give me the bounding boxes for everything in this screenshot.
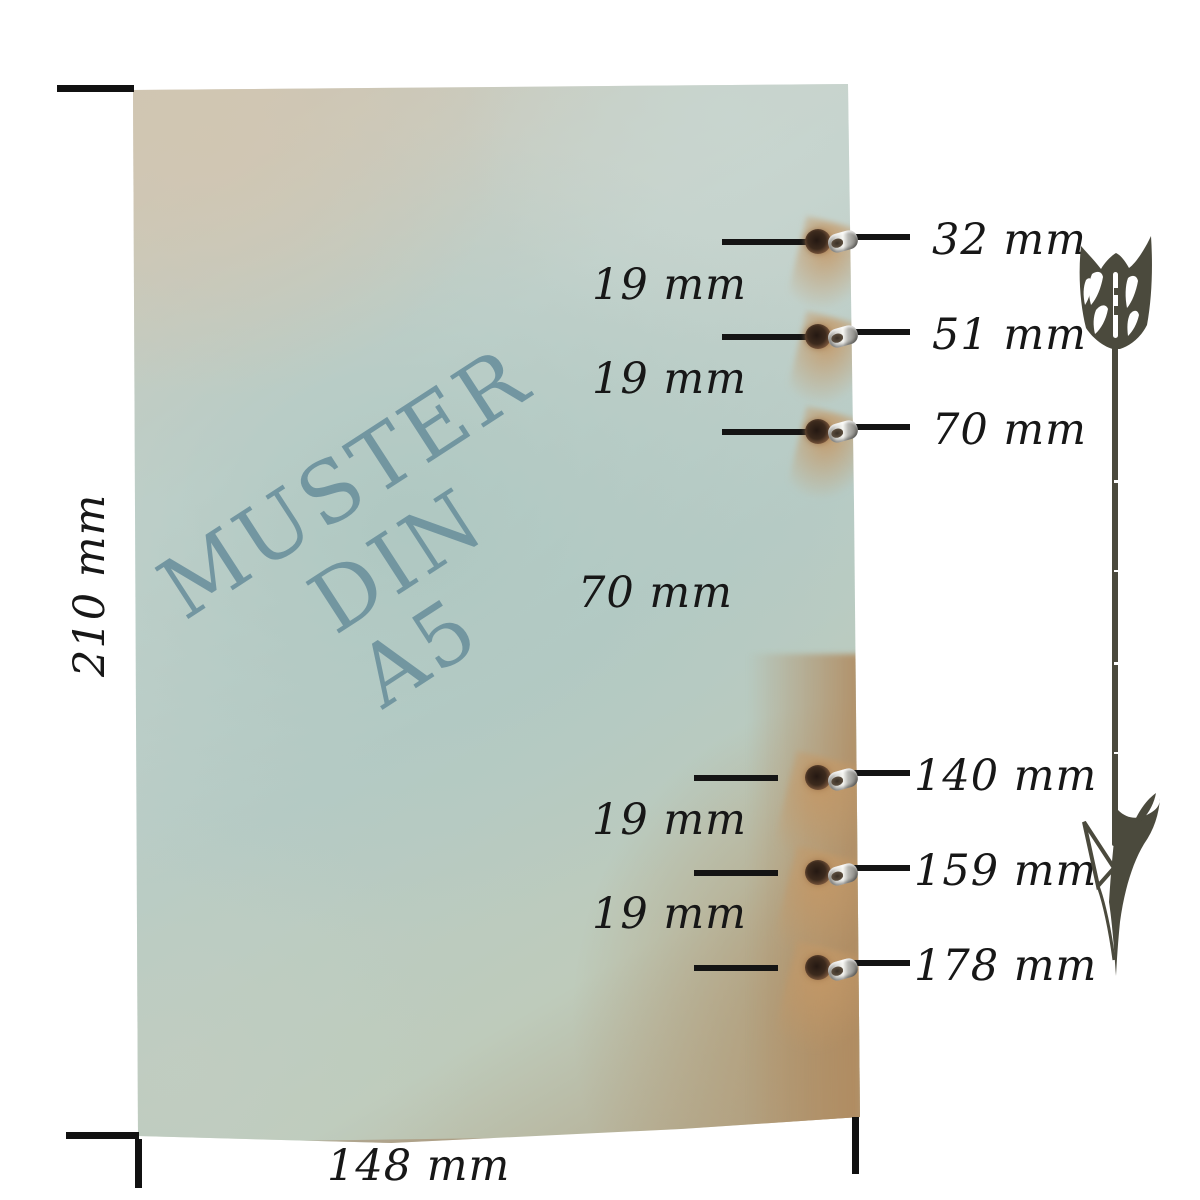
paper-width-label: 148 mm: [327, 1142, 507, 1190]
punch-hole: [805, 955, 831, 980]
dimension-line-left: [722, 239, 806, 245]
punch-hole: [805, 860, 831, 885]
dimension-line-left: [722, 334, 806, 340]
hole-stain: [785, 216, 880, 320]
dimension-line-left: [722, 429, 806, 435]
hole-gap-label: 19 mm: [592, 796, 747, 844]
hole-gap-label: 19 mm: [592, 261, 747, 309]
hole-gap-label: 19 mm: [592, 890, 747, 938]
dimension-line-right: [852, 424, 910, 430]
hole-stain: [785, 406, 880, 510]
hole-position-label: 70 mm: [932, 406, 1087, 454]
hole-position-label: 140 mm: [914, 752, 1097, 800]
dimension-line-left: [694, 775, 778, 781]
dimension-line-right: [852, 234, 910, 240]
height-tick-top: [57, 85, 134, 92]
width-tick-left: [135, 1139, 142, 1188]
paper-height-label: 210 mm: [66, 507, 114, 677]
hole-position-label: 32 mm: [932, 216, 1087, 264]
hole-gap-label: 19 mm: [592, 355, 747, 403]
product-dimension-diagram: MUSTER DIN A5 32 mm 51 mm 70 mm 140 mm 1…: [0, 0, 1200, 1200]
dimension-line-left: [694, 965, 778, 971]
height-tick-bottom: [66, 1132, 139, 1139]
dimension-line-right: [852, 960, 910, 966]
hole-gap-label: 70 mm: [578, 569, 733, 617]
hole-position-label: 178 mm: [914, 942, 1097, 990]
hole-stain: [785, 311, 880, 415]
dimension-line-left: [694, 870, 778, 876]
width-tick-right: [852, 1117, 859, 1174]
dimension-line-right: [852, 865, 910, 871]
hole-position-label: 159 mm: [914, 847, 1097, 895]
dimension-line-right: [852, 329, 910, 335]
punch-hole: [805, 765, 831, 790]
dimension-line-right: [852, 770, 910, 776]
down-arrow-icon: [1072, 230, 1160, 978]
hole-position-label: 51 mm: [932, 311, 1087, 359]
